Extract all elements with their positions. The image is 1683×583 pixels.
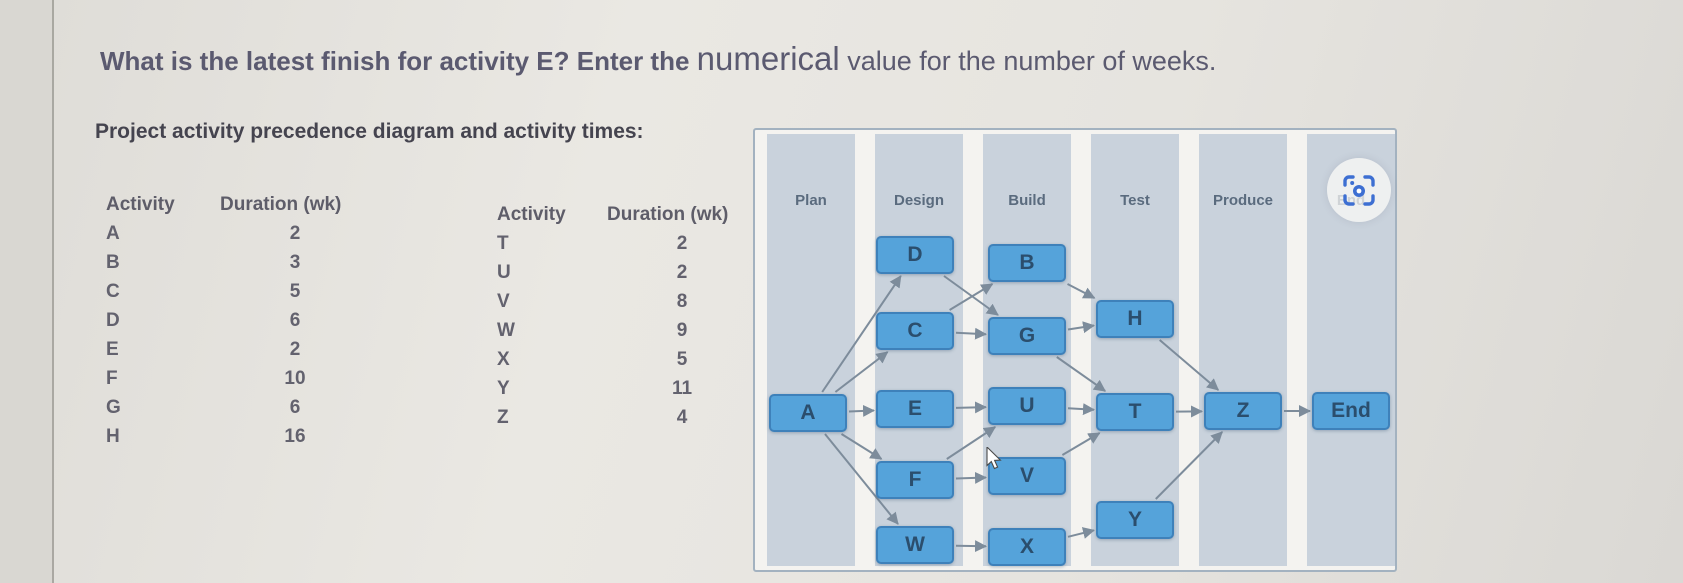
edge-G-H (1068, 326, 1094, 330)
duration-cell: 16 (220, 426, 370, 448)
table-row: W9 (497, 316, 757, 345)
activity-cell: E (106, 339, 220, 361)
table-row: D6 (106, 306, 370, 335)
duration-cell: 11 (607, 378, 757, 400)
edge-W-X (956, 546, 986, 547)
table-row: Z4 (497, 403, 757, 432)
duration-cell: 5 (220, 281, 370, 303)
edge-V-T (1062, 433, 1099, 455)
duration-cell: 10 (220, 368, 370, 390)
activity-node-x: X (988, 528, 1066, 566)
duration-cell: 2 (607, 262, 757, 284)
duration-cell: 2 (220, 339, 370, 361)
screen-capture-icon (1339, 170, 1379, 210)
table-row: A2 (106, 219, 370, 248)
table-row: G6 (106, 393, 370, 422)
duration-cell: 9 (607, 320, 757, 342)
edge-H-Z (1160, 340, 1219, 390)
mouse-cursor-icon (986, 447, 1006, 473)
precedence-diagram: PlanDesignBuildTestProduceEndADCEFWBGUVX… (753, 128, 1397, 572)
edge-layer (755, 130, 1395, 570)
duration-cell: 2 (607, 233, 757, 255)
edge-E-U (956, 407, 986, 408)
activity-node-c: C (876, 312, 954, 350)
edge-U-T (1068, 408, 1094, 409)
duration-cell: 2 (220, 223, 370, 245)
edge-A-C (835, 352, 887, 392)
activity-cell: B (106, 252, 220, 274)
edge-Y-Z (1156, 432, 1222, 499)
edge-X-Y (1068, 530, 1094, 537)
activity-node-h: H (1096, 300, 1174, 338)
activity-cell: G (106, 397, 220, 419)
edge-G-T (1057, 357, 1105, 391)
question-part2: value for the number of weeks. (840, 46, 1217, 76)
edge-A-F (842, 434, 882, 459)
table-row: Y11 (497, 374, 757, 403)
table-row: F10 (106, 364, 370, 393)
activity-node-e: E (876, 390, 954, 428)
activity-column-header: Activity (497, 204, 607, 226)
screen-edge-line (52, 0, 54, 583)
activity-node-end: End (1312, 392, 1390, 430)
question-emphasis: numerical (697, 40, 840, 77)
question-text: What is the latest finish for activity E… (100, 40, 1216, 78)
table-header-row: Activity Duration (wk) (106, 190, 370, 219)
photo-left-strip (0, 0, 52, 583)
activity-node-t: T (1096, 393, 1174, 431)
edge-B-H (1068, 284, 1095, 298)
duration-cell: 6 (220, 397, 370, 419)
table-row: E2 (106, 335, 370, 364)
activity-table-1: Activity Duration (wk) A2B3C5D6E2F10G6H1… (106, 190, 370, 451)
activity-node-y: Y (1096, 501, 1174, 539)
activity-cell: D (106, 310, 220, 332)
question-part1: What is the latest finish for activity E… (100, 46, 697, 76)
activity-node-a: A (769, 394, 847, 432)
duration-column-header: Duration (wk) (220, 194, 370, 216)
duration-cell: 8 (607, 291, 757, 313)
screen-capture-button[interactable] (1327, 158, 1391, 222)
activity-cell: Z (497, 407, 607, 429)
table-row: H16 (106, 422, 370, 451)
activity-cell: V (497, 291, 607, 313)
activity-cell: U (497, 262, 607, 284)
activity-table-2: Activity Duration (wk) T2U2V8W9X5Y11Z4 (497, 200, 757, 432)
activity-node-z: Z (1204, 392, 1282, 430)
activity-node-g: G (988, 317, 1066, 355)
duration-cell: 3 (220, 252, 370, 274)
table-row: B3 (106, 248, 370, 277)
activity-node-d: D (876, 236, 954, 274)
activity-cell: W (497, 320, 607, 342)
activity-node-b: B (988, 244, 1066, 282)
activity-node-w: W (876, 526, 954, 564)
duration-cell: 4 (607, 407, 757, 429)
diagram-subtitle: Project activity precedence diagram and … (95, 120, 644, 144)
table-row: T2 (497, 229, 757, 258)
table-row: U2 (497, 258, 757, 287)
table-row: X5 (497, 345, 757, 374)
edge-C-G (956, 333, 986, 334)
activity-cell: C (106, 281, 220, 303)
table-row: V8 (497, 287, 757, 316)
activity-column-header: Activity (106, 194, 220, 216)
activity-cell: H (106, 426, 220, 448)
table-header-row: Activity Duration (wk) (497, 200, 757, 229)
table-row: C5 (106, 277, 370, 306)
activity-node-u: U (988, 387, 1066, 425)
duration-column-header: Duration (wk) (607, 204, 757, 226)
edge-A-E (849, 411, 874, 412)
activity-cell: T (497, 233, 607, 255)
activity-cell: A (106, 223, 220, 245)
activity-node-f: F (876, 461, 954, 499)
duration-cell: 6 (220, 310, 370, 332)
duration-cell: 5 (607, 349, 757, 371)
activity-cell: X (497, 349, 607, 371)
activity-cell: F (106, 368, 220, 390)
edge-F-V (956, 478, 986, 479)
activity-cell: Y (497, 378, 607, 400)
